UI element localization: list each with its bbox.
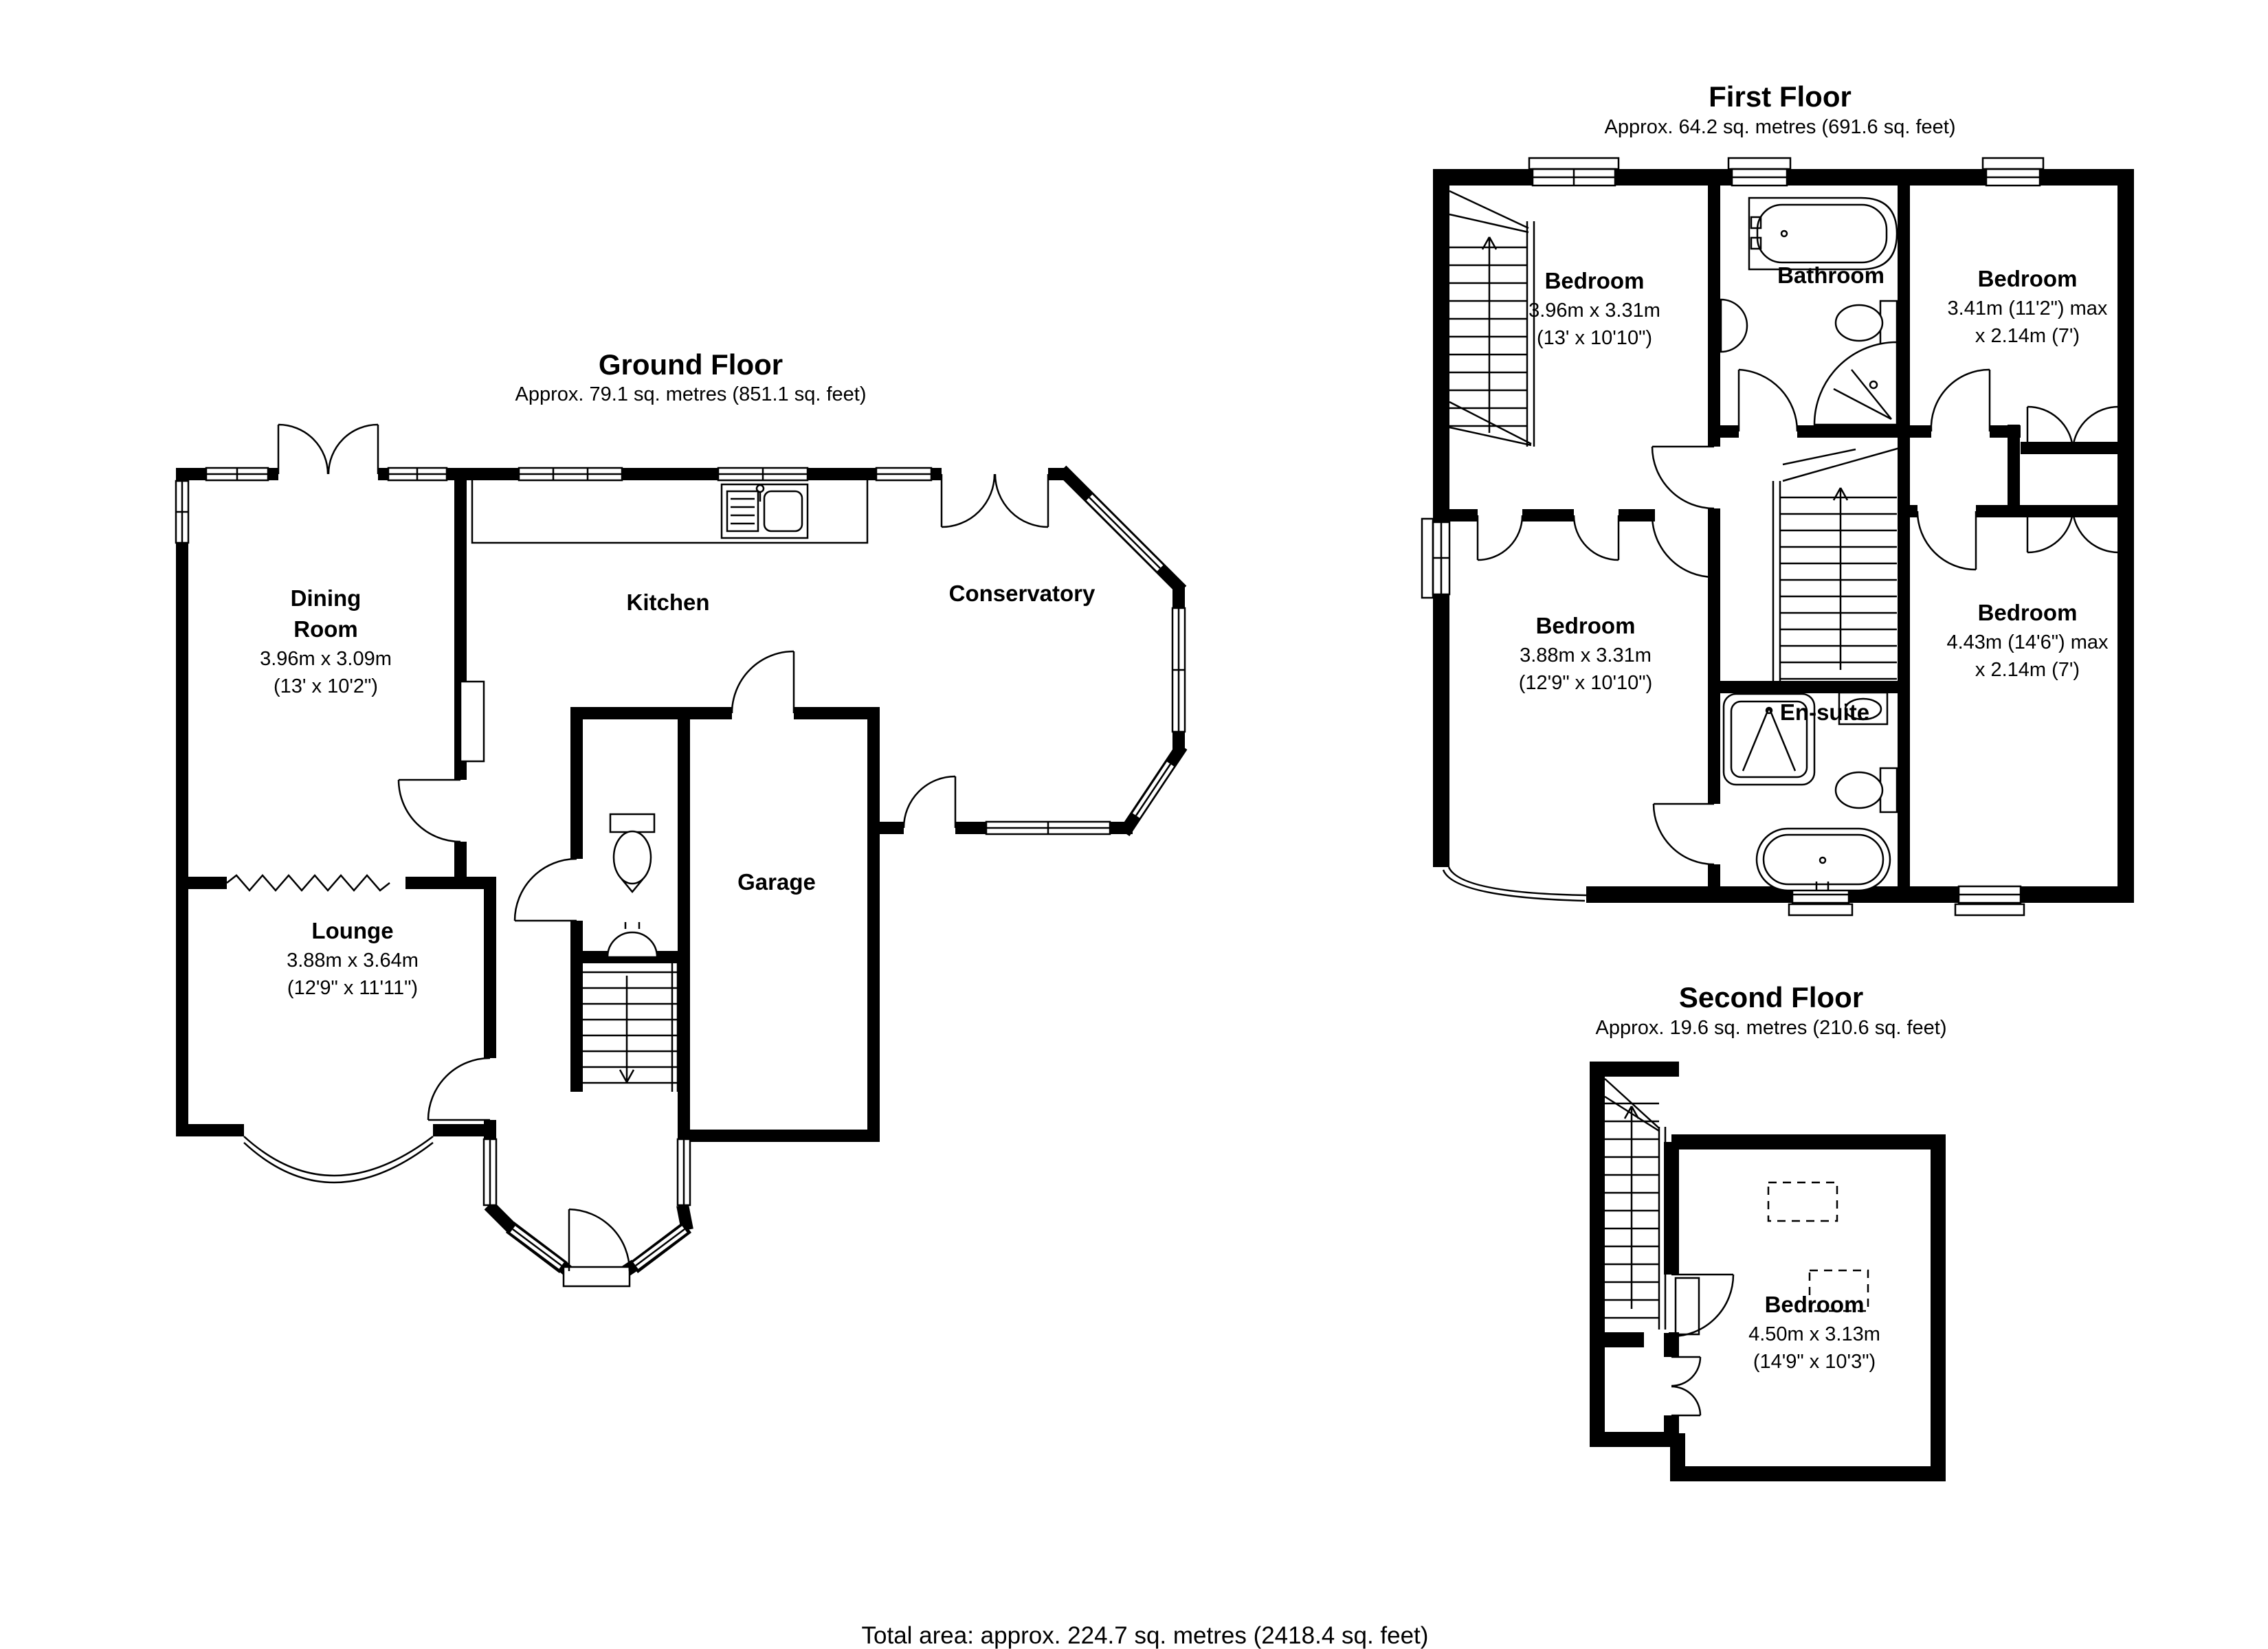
room-dims-bedroom2-ft: x 2.14m (7') [1975,325,2080,347]
room-label-bedroom4: Bedroom [1978,600,2078,625]
room-label-bedroom1: Bedroom [1545,268,1645,293]
room-dims-bedroom4-m: 4.43m (14'6") max [1946,631,2109,653]
room-label-bedroom3: Bedroom [1536,613,1636,638]
floorplan-page: Ground Floor Approx. 79.1 sq. metres (85… [0,0,2268,1649]
room-dims-bedroom4-ft: x 2.14m (7') [1975,659,2080,681]
room-dims-bedroom1-m: 3.96m x 3.31m [1528,300,1660,322]
ground-floor-plan [176,425,1185,1286]
room-label-lounge: Lounge [311,918,393,943]
first-floor-subtitle: Approx. 64.2 sq. metres (691.6 sq. feet) [1605,116,1956,138]
room-dims-bedroom5-m: 4.50m x 3.13m [1748,1323,1880,1345]
second-floor-title: Second Floor [1679,981,1863,1013]
ground-floor-title: Ground Floor [599,348,783,381]
room-label-bathroom: Bathroom [1777,262,1885,288]
second-floor-subtitle: Approx. 19.6 sq. metres (210.6 sq. feet) [1596,1017,1947,1039]
room-label-bedroom2: Bedroom [1978,266,2078,291]
room-dims-dining-ft: (13' x 10'2") [274,675,378,697]
room-dims-bedroom1-ft: (13' x 10'10") [1537,327,1652,349]
room-dims-bedroom3-ft: (12'9" x 10'10") [1519,672,1653,694]
room-label-bedroom5: Bedroom [1765,1292,1865,1317]
room-dims-dining-m: 3.96m x 3.09m [260,648,392,670]
room-dims-bedroom5-ft: (14'9" x 10'3") [1753,1351,1876,1373]
room-label-kitchen: Kitchen [626,590,709,615]
room-label-conservatory: Conservatory [949,581,1096,606]
first-floor-title: First Floor [1709,80,1852,113]
room-dims-lounge-m: 3.88m x 3.64m [287,950,419,972]
room-dims-bedroom3-m: 3.88m x 3.31m [1520,644,1652,666]
total-area-text: Total area: approx. 224.7 sq. metres (24… [862,1622,1429,1649]
room-label-dining-line1: Dining [291,585,362,611]
floorplan-drawing: Ground Floor Approx. 79.1 sq. metres (85… [0,0,2268,1649]
second-floor-plan [1590,1062,1946,1481]
room-label-dining-line2: Room [293,616,358,642]
room-dims-bedroom2-m: 3.41m (11'2") max [1948,298,2108,319]
room-label-garage: Garage [737,869,816,895]
ground-floor-subtitle: Approx. 79.1 sq. metres (851.1 sq. feet) [515,383,867,405]
room-dims-lounge-ft: (12'9" x 11'11") [287,977,418,999]
room-label-ensuite: En-suite [1780,699,1869,725]
